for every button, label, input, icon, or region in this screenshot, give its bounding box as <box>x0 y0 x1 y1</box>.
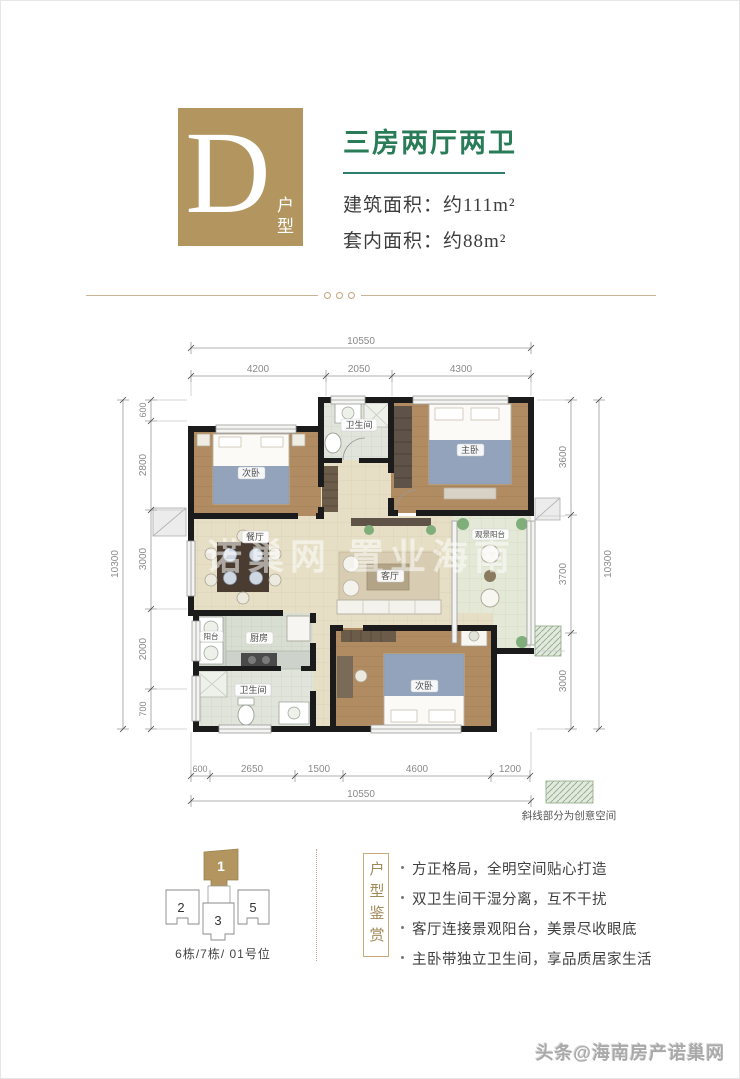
svg-text:主卧: 主卧 <box>461 444 479 455</box>
feature-bullet: 客厅连接景观阳台，美景尽收眼底 <box>401 918 691 939</box>
room-label-dining: 餐厅 <box>242 531 269 543</box>
svg-text:餐厅: 餐厅 <box>246 531 264 542</box>
svg-text:客厅: 客厅 <box>381 570 399 581</box>
dim-left-seg-2: 3000 <box>138 547 149 570</box>
svg-text:厨房: 厨房 <box>250 632 268 643</box>
unit-3-number: 3 <box>214 913 221 928</box>
svg-text:次卧: 次卧 <box>242 467 260 478</box>
floorplan-svg: 诺巢网 置业海南 次卧 卫生间 主卧 餐厅 客厅 观景阳台 阳台 厨房 卫生间 … <box>1 326 740 836</box>
room-label-bedroom-2: 次卧 <box>238 467 265 479</box>
dim-right-overall: 10300 <box>603 550 614 578</box>
creative-space-note: 斜线部分为创意空间 <box>522 809 617 822</box>
dim-top-seg-2: 4300 <box>450 364 473 375</box>
building-keyplan: 1 2 3 5 6栋/7栋/ 01号位 <box>141 844 341 969</box>
room-label-bedroom-3: 次卧 <box>411 680 438 692</box>
dim-bot-seg-0: 600 <box>192 764 207 774</box>
room-label-kitchen: 厨房 <box>246 632 273 644</box>
dim-left-seg-0: 600 <box>138 402 148 417</box>
appreciation-box: 户型鉴赏 <box>363 853 389 957</box>
room-label-bath-bottom: 卫生间 <box>235 684 271 696</box>
svg-text:阳台: 阳台 <box>204 631 219 641</box>
feature-bullet: 主卧带独立卫生间，享品质居家生活 <box>401 948 691 969</box>
dim-bot-seg-2: 1500 <box>308 764 331 775</box>
svg-text:观景阳台: 观景阳台 <box>475 529 505 539</box>
building-area-line: 建筑面积：约111m² <box>343 190 653 217</box>
dim-bot-seg-4: 1200 <box>499 764 522 775</box>
flyer-page: D 户型 三房两厅两卫 建筑面积：约111m² 套内面积：约88m² <box>0 0 740 1079</box>
dim-top-overall: 10550 <box>347 336 375 347</box>
dotted-divider <box>316 849 317 961</box>
dim-right-seg-0: 3600 <box>558 445 569 468</box>
bullet-dot-icon <box>401 896 404 899</box>
bullet-dot-icon <box>401 926 404 929</box>
keyplan-svg: 1 2 3 5 6栋/7栋/ 01号位 <box>141 844 341 969</box>
inner-area-line: 套内面积：约88m² <box>343 226 653 253</box>
building-area-label: 建筑面积： <box>343 195 443 216</box>
appreciation-side-label: 户型鉴赏 <box>369 861 384 949</box>
title-underline <box>343 172 505 174</box>
bullet-dot-icon <box>401 956 404 959</box>
bullet-dot-icon <box>401 866 404 869</box>
inner-area-value: 约88m² <box>443 231 506 252</box>
creative-space-legend: 斜线部分为创意空间 <box>522 781 617 822</box>
dim-left-seg-4: 700 <box>138 701 148 716</box>
svg-text:卫生间: 卫生间 <box>239 684 266 695</box>
svg-text:次卧: 次卧 <box>415 680 433 691</box>
core-shape <box>208 886 230 903</box>
plan-title: 三房两厅两卫 <box>343 121 653 160</box>
dim-top-seg-0: 4200 <box>247 364 270 375</box>
floorplan: 诺巢网 置业海南 次卧 卫生间 主卧 餐厅 客厅 观景阳台 阳台 厨房 卫生间 … <box>1 326 740 836</box>
dim-right-seg-2: 3000 <box>558 669 569 692</box>
unit-5-number: 5 <box>249 900 256 915</box>
dim-bot-seg-3: 4600 <box>406 764 429 775</box>
keyplan-caption: 6栋/7栋/ 01号位 <box>175 946 271 961</box>
building-area-value: 约111m² <box>443 195 516 216</box>
feature-bullet: 方正格局，全明空间贴心打造 <box>401 858 691 879</box>
unit-1-number: 1 <box>217 858 225 874</box>
feature-bullets: 方正格局，全明空间贴心打造 双卫生间干湿分离，互不干扰 客厅连接景观阳台，美景尽… <box>401 858 691 969</box>
dim-top-seg-1: 2050 <box>348 364 371 375</box>
dim-left-seg-3: 2000 <box>138 637 149 660</box>
header-info: 三房两厅两卫 建筑面积：约111m² 套内面积：约88m² <box>343 121 653 262</box>
footer-watermark: 头条@海南房产诺巢网 <box>535 1039 725 1065</box>
divider-circles-icon <box>324 292 355 299</box>
room-label-master: 主卧 <box>457 444 484 456</box>
unit-2-number: 2 <box>177 900 184 915</box>
room-label-view-balcony: 观景阳台 <box>472 529 509 540</box>
dim-bot-overall: 10550 <box>347 789 375 800</box>
dim-bot-seg-1: 2650 <box>241 764 264 775</box>
svg-text:卫生间: 卫生间 <box>345 419 372 430</box>
room-label-service-balcony: 阳台 <box>200 631 223 642</box>
inner-area-label: 套内面积： <box>343 231 443 252</box>
unit-type-label: 户型 <box>271 196 296 238</box>
unit-type-letter: D <box>178 104 278 242</box>
dim-right-seg-1: 3700 <box>558 562 569 585</box>
dim-left-overall: 10300 <box>110 550 121 578</box>
dim-left-seg-1: 2800 <box>138 453 149 476</box>
room-label-bath-top: 卫生间 <box>341 419 377 431</box>
unit-type-badge: D 户型 <box>178 108 303 246</box>
room-label-living: 客厅 <box>377 570 404 582</box>
feature-bullet: 双卫生间干湿分离，互不干扰 <box>401 888 691 909</box>
ornamental-divider <box>86 289 656 301</box>
